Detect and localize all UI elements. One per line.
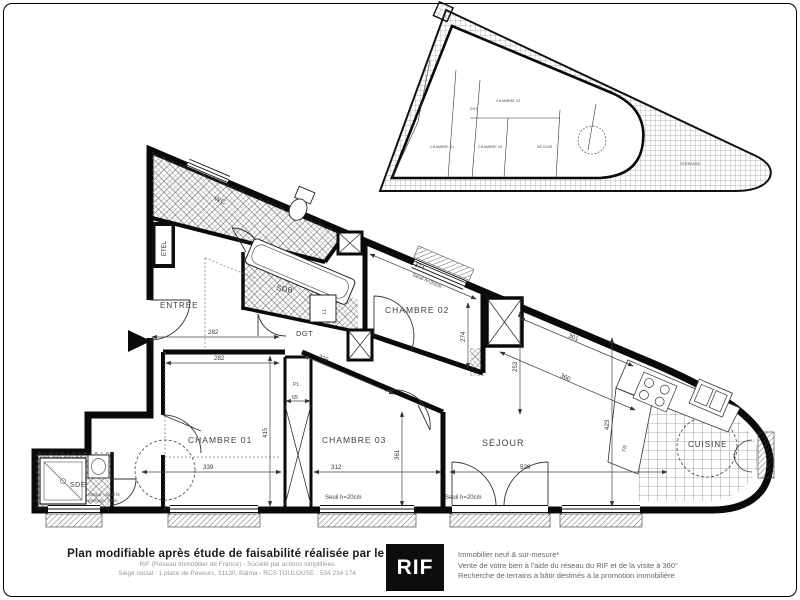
seuil-chambre03: Seuil h=20cm bbox=[325, 495, 362, 501]
dim-sejour-depth: 423 bbox=[604, 419, 611, 430]
room-label-sde: SDE bbox=[70, 482, 86, 489]
room-label-entree: ENTRÉE bbox=[160, 301, 198, 310]
rif-logo: RIF bbox=[386, 544, 444, 591]
footer-address-line: Siège social : 1 place de Paveurs, 31130… bbox=[62, 570, 412, 578]
window-chambre03 bbox=[318, 504, 416, 527]
footer-service-2: Vente de votre bien à l'aide du réseau d… bbox=[458, 561, 678, 572]
footer-service-3: Recherche de terrains à bâtir destinés à… bbox=[458, 571, 678, 582]
dim-chambre03-depth: 361 bbox=[394, 449, 401, 460]
inset-plan: CHAMBRE 02 DGT CHAMBRE 01 CHAMBRE 03 SÉJ… bbox=[380, 2, 771, 191]
inset-label-dgt: DGT bbox=[470, 107, 479, 111]
inset-label-chambre02: CHAMBRE 02 bbox=[496, 99, 520, 103]
dim-chambre03-width: 312 bbox=[331, 464, 342, 471]
seuil-sejour: Seuil h=20cm bbox=[445, 495, 482, 501]
shower bbox=[40, 458, 86, 504]
footer-service-1: Immobilier neuf & sur-mesure* bbox=[458, 550, 678, 561]
dim-chambre01-width: 282 bbox=[214, 355, 225, 362]
plan-drawing: CHAMBRE 02 DGT CHAMBRE 01 CHAMBRE 03 SÉJ… bbox=[0, 0, 800, 600]
room-label-chambre02: CHAMBRE 02 bbox=[385, 305, 449, 315]
room-label-chambre01: CHAMBRE 01 bbox=[188, 435, 252, 445]
room-label-sejour: SÉJOUR bbox=[482, 438, 525, 448]
room-label-cuisine: CUISINE bbox=[688, 440, 727, 449]
entrance-opening bbox=[145, 300, 155, 338]
footer-company-line: RIF (Réseau Immobilier de France) - Soci… bbox=[62, 561, 412, 569]
dim-placard-width: 65 bbox=[292, 395, 298, 401]
window-sde bbox=[46, 504, 102, 527]
inset-label-sejour: SÉJOUR bbox=[537, 144, 553, 149]
sde-note-2: passage : 20cm bbox=[88, 498, 118, 503]
footer-right-block: Immobilier neuf & sur-mesure* Vente de v… bbox=[458, 550, 678, 582]
sde-note-1: Vasque - Seuil ht bbox=[88, 492, 120, 497]
dim-chambre01-window: 339 bbox=[203, 464, 214, 471]
footer-left-block: Plan modifiable après étude de faisabili… bbox=[62, 548, 412, 577]
dim-chambre01-depth: 415 bbox=[262, 427, 269, 438]
main-plan: ETEL bbox=[35, 150, 774, 527]
dim-sejour-width: 529 bbox=[520, 464, 531, 471]
footer: Plan modifiable après étude de faisabili… bbox=[0, 540, 800, 600]
washing-machine: LL bbox=[310, 295, 336, 322]
dim-chambre02-depth: 274 bbox=[460, 331, 467, 342]
room-label-pl: PL bbox=[293, 382, 300, 388]
rif-logo-text: RIF bbox=[397, 556, 434, 580]
etel-label: ETEL bbox=[162, 240, 168, 256]
washing-machine-label: LL bbox=[322, 308, 328, 314]
etel-box: ETEL bbox=[152, 222, 175, 268]
window-chambre01 bbox=[168, 504, 260, 527]
inset-label-terrasse: TERRASSE bbox=[680, 162, 701, 166]
floor-plan-page: CHAMBRE 02 DGT CHAMBRE 01 CHAMBRE 03 SÉJ… bbox=[0, 0, 800, 600]
washbasin bbox=[88, 455, 109, 478]
footer-title: Plan modifiable après étude de faisabili… bbox=[62, 548, 412, 560]
window-sejour bbox=[560, 504, 642, 527]
room-label-chambre03: CHAMBRE 03 bbox=[322, 435, 386, 445]
inset-label-chambre03: CHAMBRE 03 bbox=[478, 145, 502, 149]
inset-label-chambre01: CHAMBRE 01 bbox=[430, 145, 454, 149]
dim-sejour-left: 253 bbox=[512, 361, 519, 372]
room-label-dgt: DGT bbox=[296, 329, 313, 338]
dim-entree-width: 282 bbox=[208, 329, 219, 336]
